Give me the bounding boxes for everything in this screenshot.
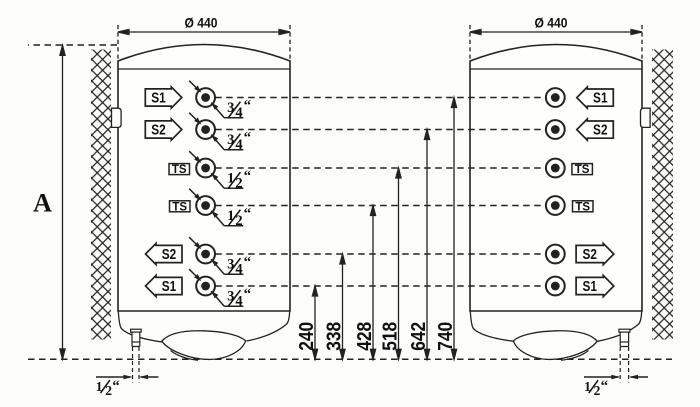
svg-text:338: 338 (324, 322, 346, 351)
svg-text:S2: S2 (151, 123, 166, 139)
svg-text:240: 240 (296, 322, 318, 351)
svg-text:TS: TS (172, 201, 187, 213)
svg-text:TS: TS (575, 201, 590, 213)
svg-text:S2: S2 (582, 247, 597, 263)
svg-text:S2: S2 (162, 247, 177, 263)
svg-text:740: 740 (435, 322, 457, 351)
svg-text:TS: TS (575, 164, 590, 176)
svg-text:518: 518 (380, 322, 402, 351)
svg-text:S2: S2 (593, 123, 608, 139)
svg-text:A: A (33, 188, 52, 217)
svg-text:642: 642 (408, 322, 430, 351)
svg-text:S1: S1 (582, 279, 597, 295)
svg-text:S1: S1 (593, 91, 608, 107)
svg-text:“: “ (601, 379, 609, 395)
svg-text:S1: S1 (162, 279, 177, 295)
svg-text:TS: TS (172, 164, 187, 176)
svg-text:Ø 440: Ø 440 (535, 15, 568, 31)
svg-text:2: 2 (594, 383, 601, 398)
svg-text:2: 2 (105, 383, 112, 398)
svg-text:“: “ (112, 379, 120, 395)
svg-text:S1: S1 (151, 91, 166, 107)
svg-text:428: 428 (354, 322, 376, 351)
svg-text:Ø 440: Ø 440 (185, 15, 218, 31)
